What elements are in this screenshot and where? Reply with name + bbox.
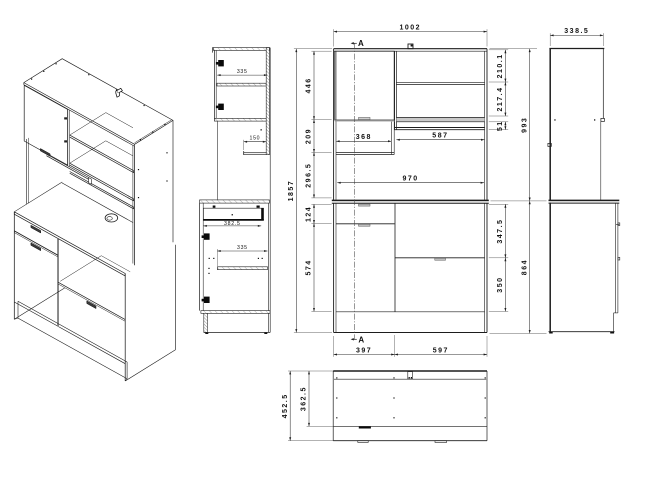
svg-text:150: 150	[250, 136, 261, 142]
svg-text:335: 335	[237, 69, 248, 75]
svg-text:452.5: 452.5	[282, 393, 289, 418]
svg-text:864: 864	[521, 259, 528, 275]
svg-text:368: 368	[356, 134, 372, 141]
svg-text:1857: 1857	[288, 180, 295, 202]
svg-text:209: 209	[306, 128, 313, 144]
svg-text:217.4: 217.4	[497, 86, 504, 111]
svg-text:382.5: 382.5	[224, 221, 240, 227]
svg-text:970: 970	[403, 176, 419, 183]
svg-text:347.5: 347.5	[497, 219, 504, 244]
svg-text:446: 446	[306, 77, 313, 93]
svg-text:124: 124	[306, 206, 313, 222]
svg-text:362.5: 362.5	[301, 386, 308, 411]
svg-text:A: A	[358, 335, 364, 344]
svg-text:1002: 1002	[400, 24, 422, 31]
svg-text:350: 350	[497, 277, 504, 293]
svg-text:210.1: 210.1	[497, 53, 504, 78]
svg-text:397: 397	[356, 347, 372, 354]
svg-text:51: 51	[497, 120, 504, 131]
svg-text:A: A	[358, 39, 364, 48]
svg-text:587: 587	[432, 133, 448, 140]
svg-text:335: 335	[237, 245, 248, 251]
svg-text:993: 993	[521, 117, 528, 133]
svg-text:597: 597	[433, 347, 449, 354]
svg-text:296.5: 296.5	[306, 163, 313, 188]
svg-text:338.5: 338.5	[564, 28, 589, 35]
svg-text:574: 574	[306, 259, 313, 275]
